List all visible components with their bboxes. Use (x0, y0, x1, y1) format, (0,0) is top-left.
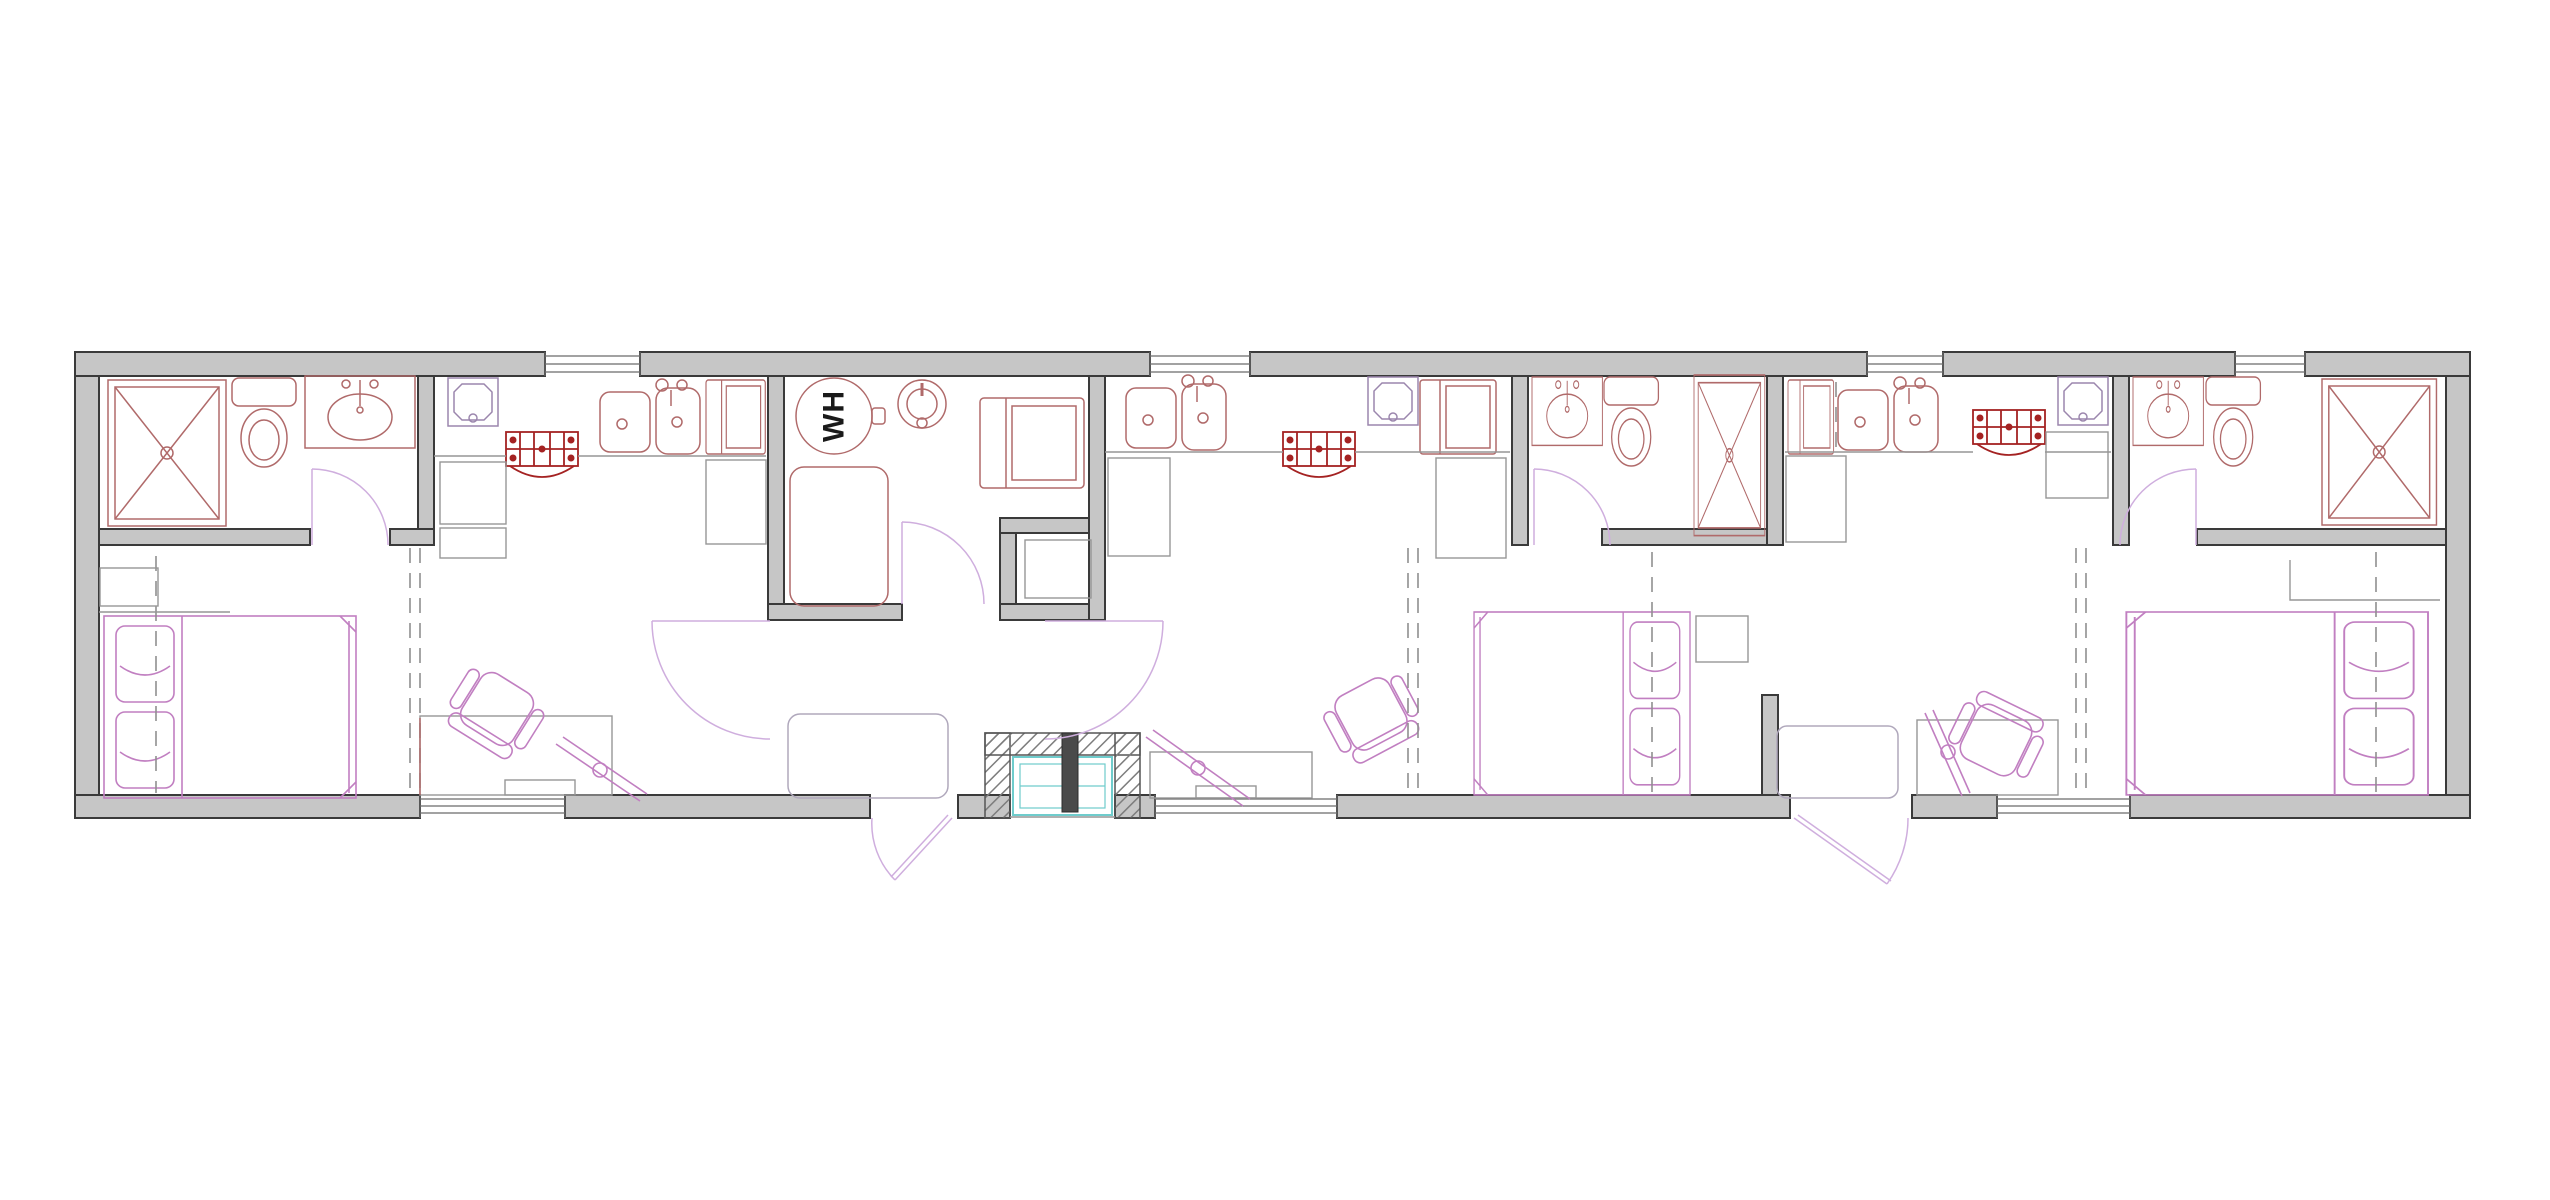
dishwasher-icon (1368, 377, 1418, 425)
wall-top (1250, 352, 1867, 376)
shower-icon (2322, 379, 2436, 525)
refrigerator-icon (706, 380, 765, 454)
refrigerator-icon (1788, 380, 1834, 454)
base-cabinet (1108, 458, 1170, 556)
base-cabinet (706, 460, 766, 544)
kitchen-sink-icon (600, 379, 700, 454)
bed-icon (1474, 612, 1690, 795)
interior-walls (99, 376, 2446, 795)
shower-icon (1694, 375, 1765, 536)
wall-bath-a-right (418, 376, 434, 545)
wall-left (75, 352, 99, 818)
desk (420, 716, 612, 795)
kitchen-sink-icon (1126, 375, 1226, 450)
washer-dryer-icon (980, 398, 1084, 488)
nightstand (1696, 616, 1748, 662)
kitchen-a (434, 378, 766, 558)
base-cabinet (440, 462, 506, 524)
entry-door-c (1794, 815, 1908, 884)
living-a (420, 621, 948, 801)
entry-door-a (872, 815, 952, 880)
wall-utility-left (768, 376, 784, 620)
window (1997, 795, 2130, 818)
wall-bath-b-bottom (1602, 529, 1767, 545)
desk (1150, 752, 1312, 798)
bedroom-c (2126, 552, 2440, 795)
wall-bath-a-bottom (99, 529, 310, 545)
kitchen-c (1785, 377, 2111, 542)
shower-icon (108, 380, 226, 526)
toilet-icon (232, 378, 296, 467)
floor-plan-canvas: WH (0, 0, 2550, 1200)
vanity-sink-icon (305, 376, 415, 448)
living-c (1777, 548, 2086, 798)
bench (1777, 726, 1898, 798)
bedroom-b (1474, 552, 1748, 795)
bathroom-a (108, 376, 415, 545)
nightstand (100, 568, 158, 606)
kitchen-sink-icon (1838, 377, 1938, 452)
wall-bath-a-bottom (390, 529, 434, 545)
window (1867, 352, 1943, 376)
wall-bottom (1912, 795, 1997, 818)
bathroom-c (2120, 377, 2436, 545)
expansion-tank-icon (898, 380, 946, 428)
wall-closet-left (1000, 533, 1016, 604)
tv-icon (556, 737, 647, 801)
wall-bottom (2130, 795, 2470, 818)
storage-shelf (1025, 540, 1091, 598)
office-chair-icon (1318, 667, 1428, 769)
vanity-sink-icon (2133, 377, 2203, 445)
toilet-icon (1604, 377, 1658, 466)
base-cabinet (1786, 456, 1846, 542)
window (2235, 352, 2305, 376)
window (1150, 352, 1250, 376)
water-heater-room: WH (790, 378, 1091, 606)
door-swing (1534, 469, 1610, 545)
equipment-platform (790, 467, 888, 606)
unit-b (1045, 375, 1765, 806)
wall-bottom (1337, 795, 1790, 818)
wall-bath-c-bottom (2197, 529, 2446, 545)
wall-bath-b-left (1512, 376, 1528, 545)
office-chair-icon (439, 660, 550, 765)
wall-top (1943, 352, 2235, 376)
vanity-sink-icon (1532, 377, 1602, 445)
refrigerator-icon (1420, 380, 1496, 454)
sheet: WH (0, 0, 2550, 1200)
base-cabinet (440, 528, 506, 558)
door-swing (2120, 469, 2196, 545)
base-cabinet (1436, 458, 1506, 558)
door-swing (902, 522, 984, 604)
porch-post (1062, 733, 1078, 812)
closet-shelf-line (2290, 560, 2440, 600)
bed-icon (2126, 612, 2428, 795)
bed-icon (104, 616, 356, 798)
range-icon (506, 432, 578, 477)
wall-top (75, 352, 545, 376)
range-icon (1973, 410, 2045, 455)
tv-icon (1925, 710, 1970, 796)
desk-tray (505, 780, 575, 795)
water-heater-label: WH (818, 390, 851, 442)
tv-icon (1146, 730, 1250, 806)
wall-top (640, 352, 1150, 376)
bathroom-b (1532, 375, 1765, 545)
entry-porch (985, 733, 1140, 818)
wall-bath-b-right (1767, 376, 1783, 545)
wall-bedroom-b-stub (1762, 695, 1778, 795)
door-swing (652, 621, 770, 739)
door-swing (1045, 621, 1163, 739)
toilet-icon (2206, 377, 2260, 466)
wall-top (2305, 352, 2470, 376)
wall-right (2446, 352, 2470, 818)
bedroom-a (99, 548, 420, 798)
window (420, 795, 565, 818)
wall-bath-c-left (2113, 376, 2129, 545)
door-swing (312, 469, 388, 545)
base-cabinet (2046, 432, 2108, 498)
bench (788, 714, 948, 798)
range-icon (1283, 432, 1355, 477)
porch-wall (1115, 733, 1140, 818)
utility-core: WH (790, 378, 1140, 818)
window (545, 352, 640, 376)
dishwasher-icon (448, 378, 498, 426)
dishwasher-icon (2058, 377, 2108, 425)
kitchen-b (1105, 375, 1510, 558)
